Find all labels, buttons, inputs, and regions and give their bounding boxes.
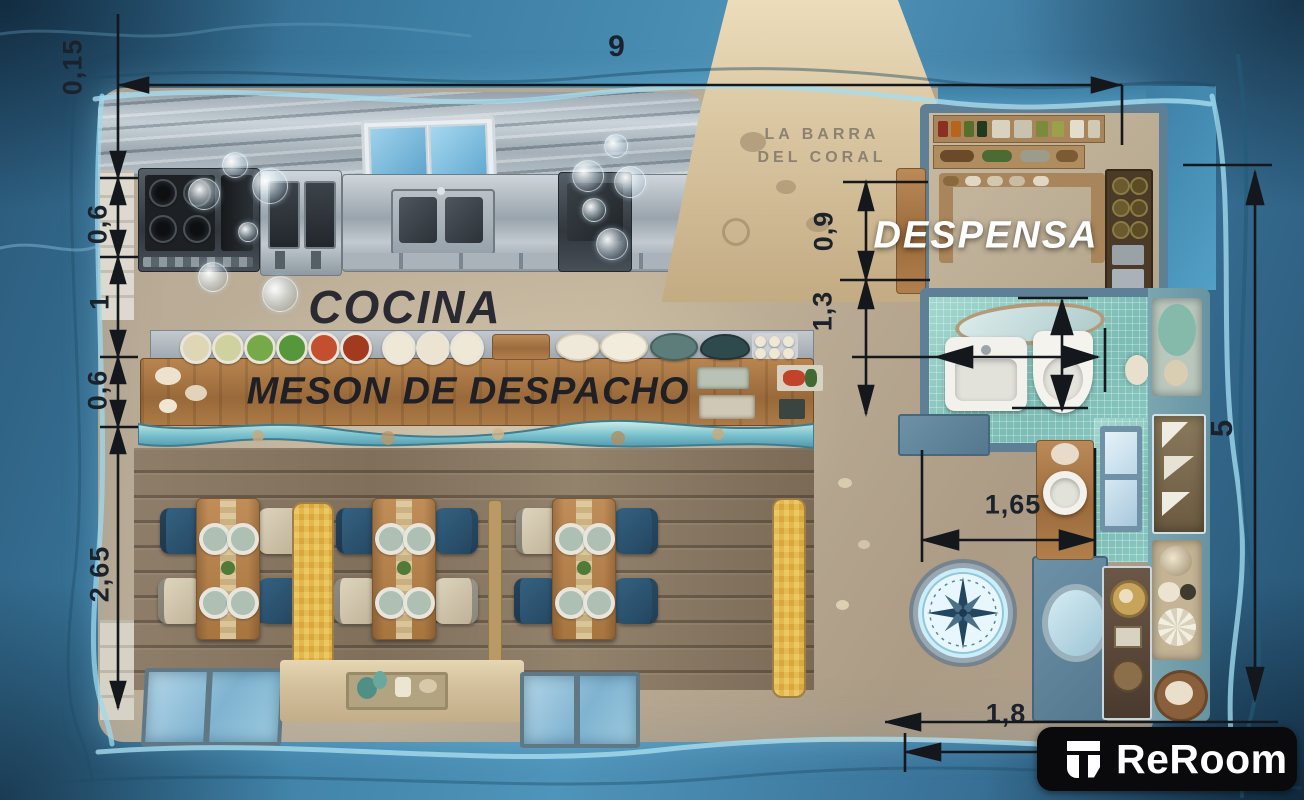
- dimension-left-2: 1: [85, 294, 116, 310]
- shell-icon: [419, 679, 437, 693]
- sand-platform: [280, 660, 524, 722]
- porthole-icon: [1042, 584, 1110, 662]
- coral-niche: [1152, 298, 1202, 396]
- dimension-right-height: 5: [1204, 419, 1240, 437]
- seafood-tray: [697, 367, 749, 389]
- vessel-sink: [1043, 471, 1087, 515]
- coral-icon: [1158, 304, 1196, 356]
- dimension-top-width: 9: [608, 30, 626, 64]
- right-niche-wall: [1148, 288, 1210, 722]
- scallop-icon: [1158, 608, 1196, 646]
- spice-bowl: [180, 332, 212, 364]
- coral-sprig-icon: [1051, 443, 1079, 465]
- cutting-board: [492, 334, 550, 360]
- conch-icon: [1165, 681, 1193, 705]
- dimension-entry-0: 0,9: [809, 211, 840, 252]
- footprint-icon: [776, 180, 796, 194]
- spice-bowl: [212, 332, 244, 364]
- dimension-vanity-width: 1,65: [985, 490, 1042, 521]
- reroom-wordmark: ReRoom: [1116, 736, 1288, 783]
- sail-icon: [1164, 456, 1194, 480]
- faucet-icon: [437, 187, 445, 195]
- brass-bell-icon: [1112, 660, 1144, 692]
- brass-clock-icon: [1110, 580, 1148, 618]
- spice-bowl: [308, 332, 340, 364]
- white-oval-plate: [600, 331, 648, 362]
- dimension-entry-1: 1,3: [808, 291, 839, 332]
- shell-icon: [1158, 582, 1180, 602]
- kitchen-label: COCINA: [308, 280, 501, 334]
- dining-table: [196, 498, 260, 640]
- floorplan-render: LA BARRA DEL CORAL: [0, 0, 1304, 800]
- dimension-left-0: 0,15: [58, 39, 89, 96]
- pantry-room: [920, 104, 1168, 308]
- wicker-screen: [772, 498, 806, 698]
- shell-niche: [1152, 540, 1202, 660]
- shell-decor-icon: [159, 399, 177, 413]
- table-plant-icon: [577, 561, 591, 575]
- sand-dollar-icon: [722, 218, 750, 246]
- sail-icon: [1162, 492, 1190, 516]
- toilet: [1033, 331, 1093, 413]
- cabinet: [898, 414, 990, 456]
- dimension-left-1: 0,6: [83, 204, 114, 245]
- instrument-case: [1102, 566, 1152, 720]
- shrimp-tray: [777, 365, 823, 391]
- glass-floor-panel: [141, 668, 285, 746]
- sunken-planter: [346, 672, 448, 710]
- shell-icon: [858, 540, 870, 549]
- conch-plaque: [1154, 670, 1208, 722]
- ship-model-case: [1152, 414, 1206, 534]
- reroom-logo: ReRoom: [1037, 727, 1297, 791]
- shell-icon: [1180, 584, 1196, 600]
- dining-table: [372, 498, 436, 640]
- vase-icon: [395, 677, 411, 697]
- chair: [614, 508, 658, 554]
- teal-oval-plate: [650, 333, 698, 361]
- dark-fish-plate: [700, 334, 750, 360]
- compass-rose-icon: [908, 558, 1018, 668]
- restaurant-name: LA BARRA DEL CORAL: [757, 123, 886, 169]
- pantry-label: DESPENSA: [873, 215, 1098, 258]
- spice-bowl: [340, 332, 372, 364]
- dimension-left-4: 2,65: [85, 546, 116, 603]
- bathroom-sink: [945, 337, 1027, 411]
- spice-bowl: [276, 332, 308, 364]
- chair: [434, 508, 478, 554]
- vanity-counter: [1036, 440, 1094, 560]
- shell-wall-decor-icon: [1125, 355, 1149, 385]
- resin-river-edge: [138, 418, 814, 456]
- table-plant-icon: [221, 561, 235, 575]
- white-oval-plate: [556, 333, 600, 361]
- wine-rack: [1105, 169, 1153, 299]
- caviar-tray: [779, 399, 805, 419]
- window: [1100, 426, 1142, 532]
- counter-label: MESON DE DESPACHO: [247, 371, 690, 414]
- rolls-tray: [752, 333, 798, 359]
- chair: [434, 578, 478, 624]
- shell-icon: [1164, 360, 1188, 386]
- spice-bowl: [244, 332, 276, 364]
- shell-decor-icon: [185, 385, 207, 401]
- restaurant-name-line1: LA BARRA: [757, 123, 886, 146]
- shell-icon: [836, 600, 849, 610]
- shell-icon: [838, 478, 852, 488]
- faucet-icon: [981, 345, 991, 355]
- chair: [614, 578, 658, 624]
- coral-sprig-icon: [373, 671, 387, 689]
- cream-bowl: [416, 331, 450, 365]
- dining-table: [552, 498, 616, 640]
- dimension-walkway-width: 1,8: [986, 699, 1027, 730]
- sail-icon: [1162, 422, 1188, 448]
- oyster-tray: [699, 395, 755, 419]
- display-cabinet: [1032, 556, 1108, 722]
- dimension-left-3: 0,6: [83, 370, 114, 411]
- glass-floor-panel: [520, 672, 640, 748]
- nautilus-icon: [1160, 546, 1192, 576]
- restaurant-name-line2: DEL CORAL: [757, 146, 886, 169]
- kitchen-counter: [342, 174, 704, 272]
- framed-item: [1114, 626, 1142, 648]
- white-tile-wall-bottom: [100, 620, 134, 720]
- cream-bowl: [450, 331, 484, 365]
- shell-decor-icon: [155, 367, 181, 385]
- pantry-shelf: [933, 145, 1085, 169]
- reroom-r-icon: [1067, 741, 1100, 778]
- cream-bowl: [382, 331, 416, 365]
- table-plant-icon: [397, 561, 411, 575]
- pantry-shelf: [933, 115, 1105, 143]
